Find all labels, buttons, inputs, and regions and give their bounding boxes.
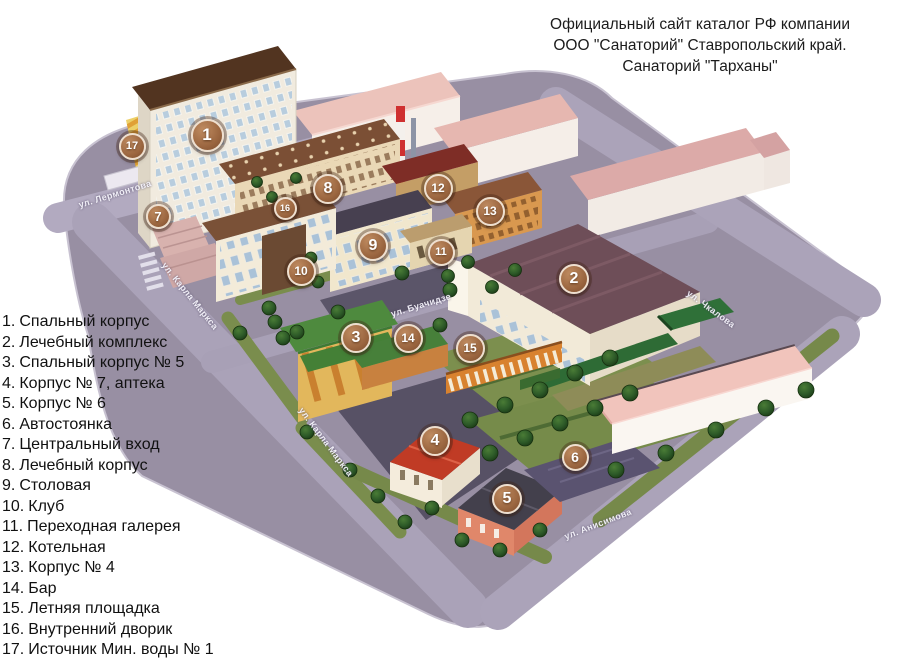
legend-item-number: 2. <box>2 334 15 351</box>
tree <box>442 270 455 283</box>
tree <box>567 365 583 381</box>
tree <box>608 462 624 478</box>
tree <box>462 256 475 269</box>
legend-item-label: Лечебный комплекс <box>19 334 167 351</box>
tree <box>622 385 638 401</box>
legend-item-number: 17. <box>2 641 24 658</box>
tree <box>398 515 412 529</box>
tree <box>290 325 304 339</box>
tree <box>493 543 507 557</box>
tree <box>291 173 302 184</box>
legend-item-number: 7. <box>2 436 15 453</box>
legend-item-number: 15. <box>2 600 24 617</box>
tree <box>497 397 513 413</box>
tree <box>395 266 409 280</box>
tree <box>331 305 345 319</box>
tree <box>443 283 457 297</box>
legend-item-label: Столовая <box>19 477 91 494</box>
title-line-2: ООО "Санаторий" Ставропольский край. <box>505 35 895 56</box>
marker-3: 3 <box>341 323 371 353</box>
map-legend: 1.Спальный корпус2.Лечебный комплекс3.Сп… <box>2 312 214 661</box>
tree <box>455 533 469 547</box>
marker-7: 7 <box>146 204 171 229</box>
tree <box>343 463 357 477</box>
tree <box>509 264 522 277</box>
legend-item-label: Котельная <box>28 539 105 556</box>
tree <box>798 382 814 398</box>
legend-item-number: 16. <box>2 621 24 638</box>
tree <box>482 445 498 461</box>
legend-item-number: 5. <box>2 395 15 412</box>
tree <box>233 326 247 340</box>
legend-item-11: 11.Переходная галерея <box>2 517 214 538</box>
legend-item-number: 9. <box>2 477 15 494</box>
marker-5: 5 <box>492 484 522 514</box>
marker-17: 17 <box>119 133 146 160</box>
legend-item-label: Корпус № 6 <box>19 395 106 412</box>
legend-item-8: 8.Лечебный корпус <box>2 456 214 477</box>
legend-item-13: 13.Корпус № 4 <box>2 558 214 579</box>
marker-16: 16 <box>274 197 297 220</box>
legend-item-label: Внутренний дворик <box>28 621 172 638</box>
legend-item-label: Источник Мин. воды № 1 <box>28 641 213 658</box>
tree <box>486 281 499 294</box>
marker-14: 14 <box>394 324 423 353</box>
legend-item-number: 10. <box>2 498 24 515</box>
legend-item-label: Корпус № 4 <box>28 559 115 576</box>
legend-item-3: 3.Спальный корпус № 5 <box>2 353 214 374</box>
marker-11: 11 <box>428 239 455 266</box>
legend-item-label: Клуб <box>28 498 64 515</box>
legend-item-15: 15.Летняя площадка <box>2 599 214 620</box>
marker-8: 8 <box>313 174 343 204</box>
legend-item-label: Лечебный корпус <box>19 457 147 474</box>
marker-2: 2 <box>559 264 589 294</box>
tree <box>268 315 282 329</box>
legend-item-9: 9.Столовая <box>2 476 214 497</box>
marker-1: 1 <box>191 119 224 152</box>
marker-6: 6 <box>562 444 589 471</box>
legend-item-label: Автостоянка <box>19 416 112 433</box>
tree <box>533 523 547 537</box>
tree <box>276 331 290 345</box>
marker-9: 9 <box>358 231 388 261</box>
legend-item-number: 12. <box>2 539 24 556</box>
legend-item-17: 17.Источник Мин. воды № 1 <box>2 640 214 661</box>
legend-item-6: 6.Автостоянка <box>2 415 214 436</box>
page-title: Официальный сайт каталог РФ компании ООО… <box>505 14 895 77</box>
tree <box>262 301 276 315</box>
legend-item-10: 10.Клуб <box>2 497 214 518</box>
legend-item-number: 11. <box>2 518 23 535</box>
legend-item-number: 4. <box>2 375 15 392</box>
marker-10: 10 <box>287 257 316 286</box>
legend-item-7: 7.Центральный вход <box>2 435 214 456</box>
legend-item-5: 5.Корпус № 6 <box>2 394 214 415</box>
tree <box>587 400 603 416</box>
legend-item-16: 16.Внутренний дворик <box>2 620 214 641</box>
legend-item-12: 12.Котельная <box>2 538 214 559</box>
legend-item-14: 14.Бар <box>2 579 214 600</box>
legend-item-2: 2.Лечебный комплекс <box>2 333 214 354</box>
marker-13: 13 <box>476 197 505 226</box>
tree <box>462 412 478 428</box>
legend-item-number: 13. <box>2 559 24 576</box>
tree <box>425 501 439 515</box>
legend-item-label: Спальный корпус <box>19 313 149 330</box>
marker-4: 4 <box>420 426 450 456</box>
legend-item-number: 3. <box>2 354 15 371</box>
legend-item-label: Центральный вход <box>19 436 159 453</box>
tree <box>602 350 618 366</box>
legend-item-1: 1.Спальный корпус <box>2 312 214 333</box>
title-line-3: Санаторий "Тарханы" <box>505 56 895 77</box>
tree <box>300 425 314 439</box>
tree <box>708 422 724 438</box>
title-line-1: Официальный сайт каталог РФ компании <box>505 14 895 35</box>
legend-item-number: 14. <box>2 580 24 597</box>
legend-item-label: Бар <box>28 580 56 597</box>
tree <box>371 489 385 503</box>
legend-item-label: Переходная галерея <box>27 518 180 535</box>
legend-item-label: Спальный корпус № 5 <box>19 354 184 371</box>
sanatorium-site-plan: ул. Лермонтоваул. Карла Марксаул. Буачид… <box>0 0 900 666</box>
marker-12: 12 <box>424 174 453 203</box>
tree <box>658 445 674 461</box>
tree <box>552 415 568 431</box>
legend-item-number: 6. <box>2 416 15 433</box>
legend-item-number: 8. <box>2 457 15 474</box>
marker-15: 15 <box>456 334 485 363</box>
legend-item-label: Летняя площадка <box>28 600 160 617</box>
tree <box>517 430 533 446</box>
legend-item-label: Корпус № 7, аптека <box>19 375 164 392</box>
tree <box>433 318 447 332</box>
tree <box>758 400 774 416</box>
legend-item-4: 4.Корпус № 7, аптека <box>2 374 214 395</box>
legend-item-number: 1. <box>2 313 15 330</box>
tree <box>252 177 263 188</box>
tree <box>532 382 548 398</box>
